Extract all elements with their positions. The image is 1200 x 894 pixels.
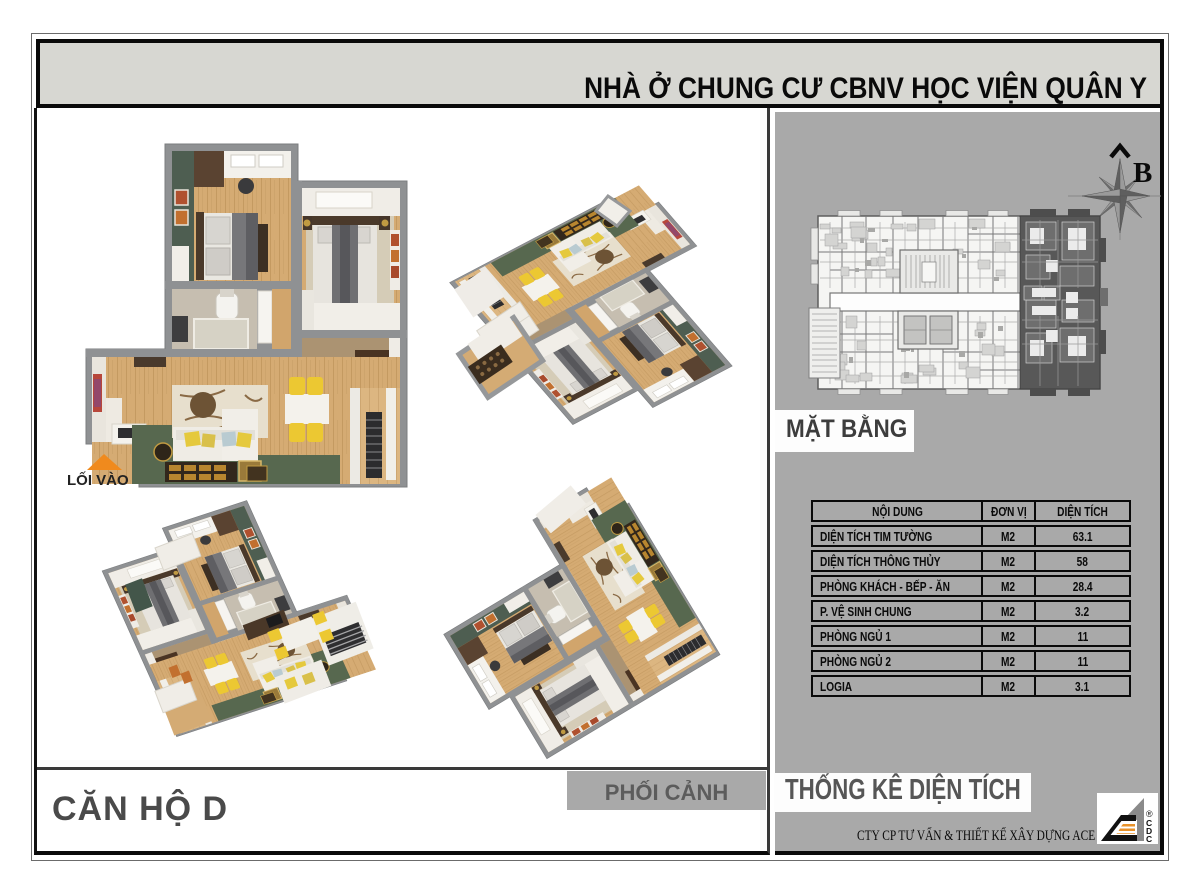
svg-text:B: B — [1133, 157, 1152, 189]
svg-text:C: C — [1146, 834, 1152, 844]
